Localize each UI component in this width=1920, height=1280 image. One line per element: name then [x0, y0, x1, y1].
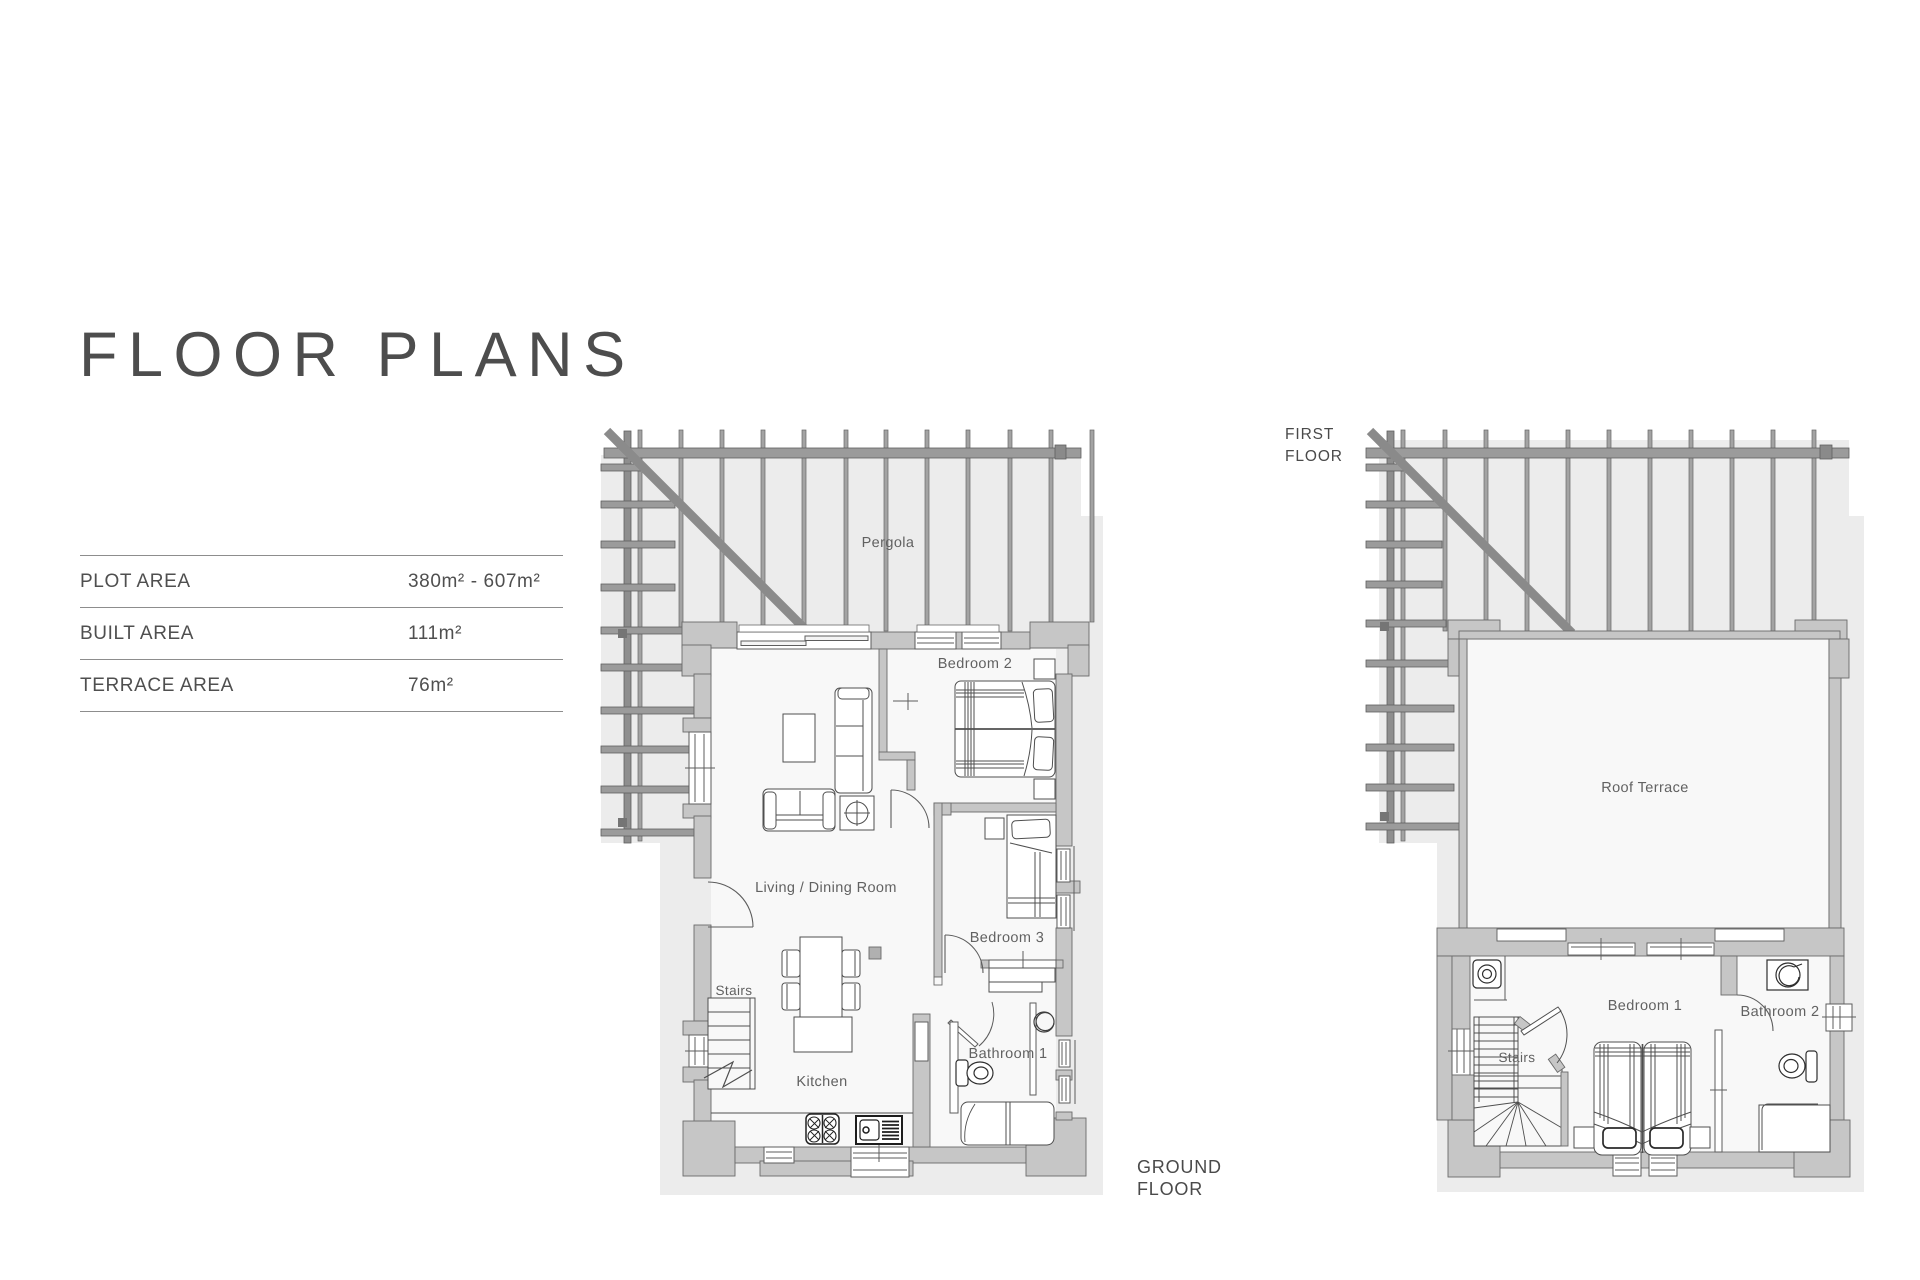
svg-text:Bedroom 2: Bedroom 2	[938, 656, 1013, 672]
svg-text:Kitchen: Kitchen	[796, 1074, 847, 1090]
svg-text:Stairs: Stairs	[716, 983, 753, 998]
svg-text:Bedroom 3: Bedroom 3	[970, 930, 1045, 946]
svg-text:Living / Dining Room: Living / Dining Room	[755, 880, 897, 896]
svg-text:Roof Terrace: Roof Terrace	[1601, 780, 1689, 796]
svg-text:Bedroom 1: Bedroom 1	[1608, 998, 1683, 1014]
svg-text:Bathroom 2: Bathroom 2	[1741, 1004, 1820, 1020]
svg-text:Bathroom 1: Bathroom 1	[969, 1046, 1048, 1062]
svg-text:Pergola: Pergola	[862, 535, 915, 551]
svg-text:Stairs: Stairs	[1499, 1050, 1536, 1065]
